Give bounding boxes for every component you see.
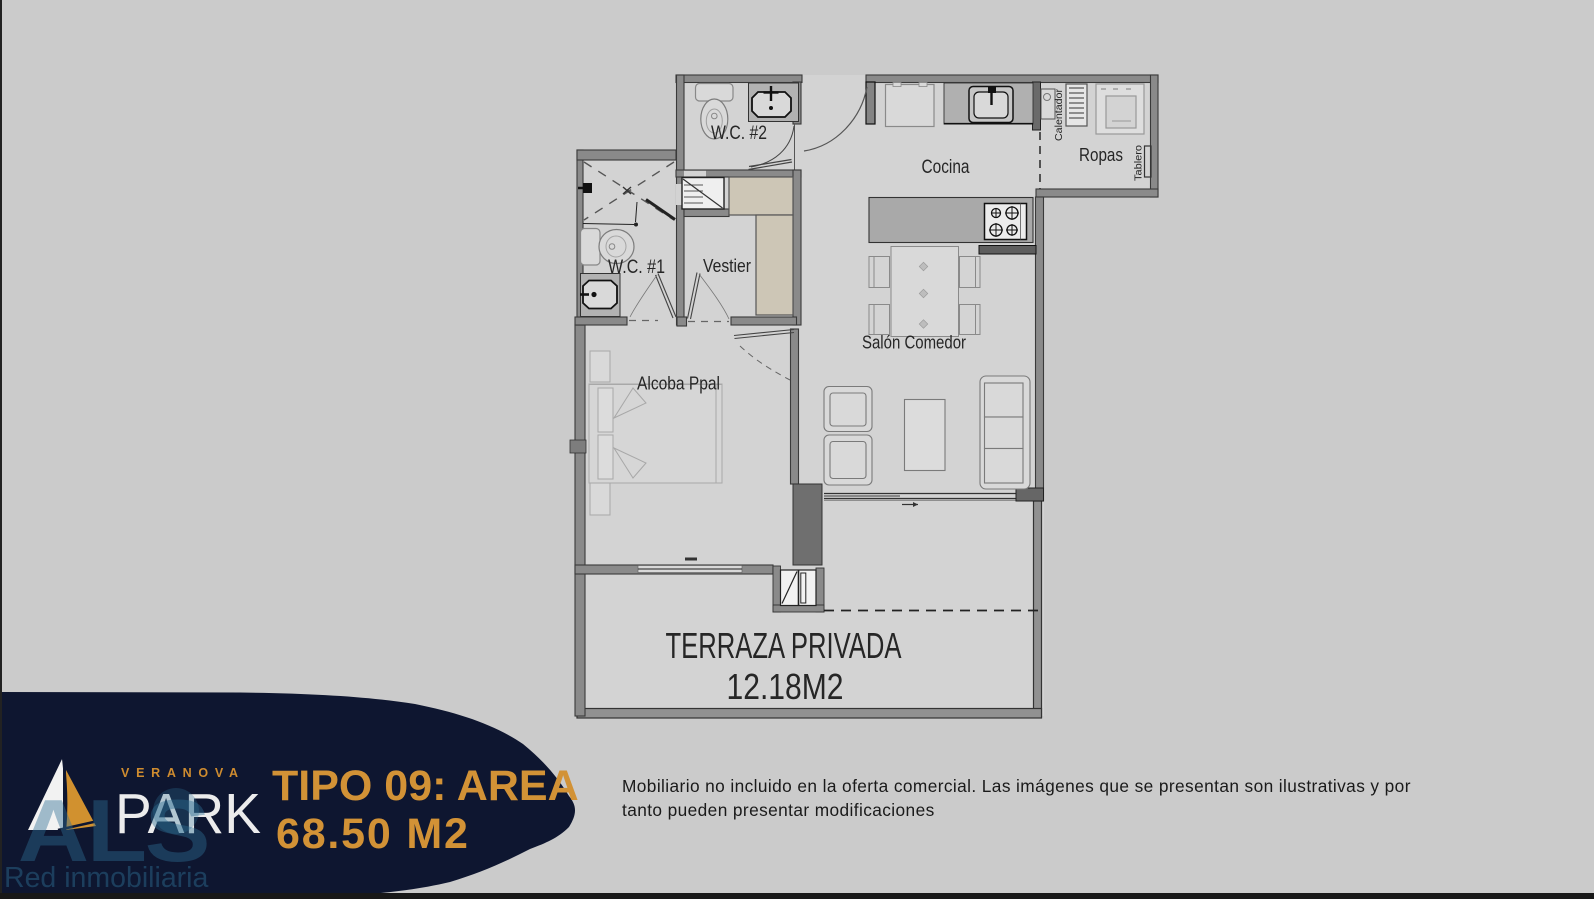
svg-text:TERRAZA PRIVADA: TERRAZA PRIVADA — [666, 625, 902, 666]
svg-text:tanto pueden presentar modific: tanto pueden presentar modificaciones — [622, 800, 935, 820]
svg-text:Calentador: Calentador — [1053, 88, 1065, 141]
svg-text:12.18M2: 12.18M2 — [727, 666, 844, 707]
svg-text:Ropas: Ropas — [1079, 145, 1123, 165]
svg-text:W.C. #1: W.C. #1 — [608, 257, 665, 278]
svg-text:Cocina: Cocina — [922, 157, 970, 178]
svg-text:Alcoba Ppal: Alcoba Ppal — [637, 374, 720, 394]
svg-text:Salón Comedor: Salón Comedor — [862, 332, 966, 353]
svg-text:68.50 M2: 68.50 M2 — [276, 810, 470, 858]
svg-text:Vestier: Vestier — [703, 256, 751, 276]
svg-text:W.C. #2: W.C. #2 — [711, 123, 767, 144]
svg-text:Tablero: Tablero — [1133, 145, 1145, 181]
svg-text:Red inmobiliaria: Red inmobiliaria — [4, 862, 208, 894]
svg-text:Mobiliario no incluido en la o: Mobiliario no incluido en la oferta come… — [622, 776, 1411, 796]
svg-text:TIPO 09: AREA: TIPO 09: AREA — [272, 762, 579, 810]
